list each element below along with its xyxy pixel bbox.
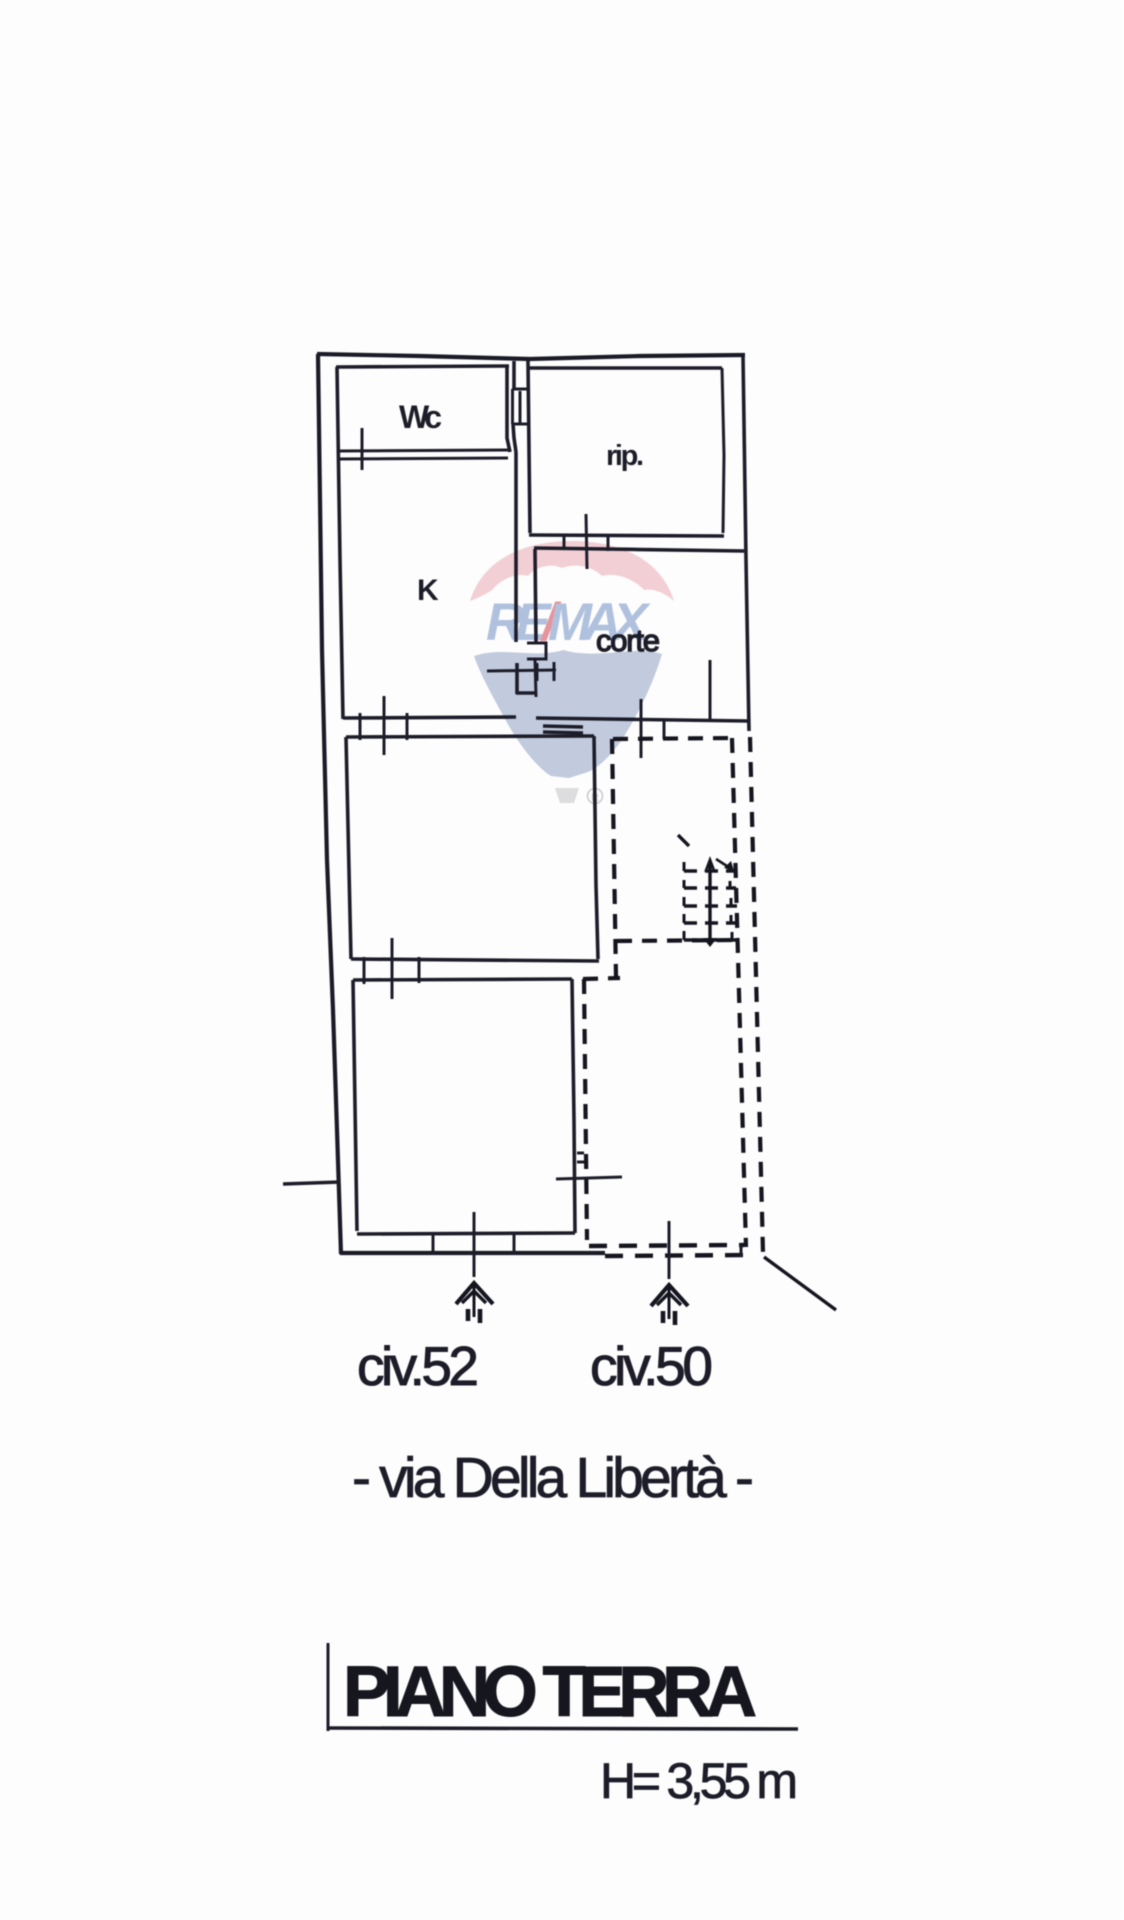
svg-text:corte: corte [596, 623, 660, 658]
svg-text:rip.: rip. [606, 440, 644, 472]
svg-text:civ.50: civ.50 [590, 1335, 713, 1397]
svg-text:H= 3,55 m: H= 3,55 m [600, 1753, 798, 1809]
svg-text:K: K [417, 574, 439, 607]
svg-text:PIANO TERRA: PIANO TERRA [343, 1653, 757, 1732]
svg-text:- via Della Libertà -: - via Della Libertà - [352, 1446, 754, 1510]
svg-text:civ.52: civ.52 [357, 1335, 479, 1397]
svg-text:Wc: Wc [399, 399, 442, 435]
